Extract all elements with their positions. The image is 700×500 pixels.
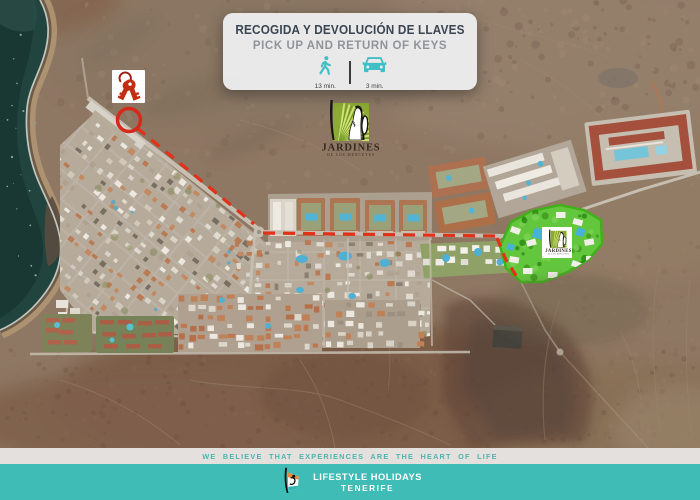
svg-text:DE LOS MENCEYES: DE LOS MENCEYES: [327, 153, 375, 157]
svg-text:JARDINES: JARDINES: [322, 143, 381, 154]
svg-text:JARDINES: JARDINES: [545, 249, 571, 254]
